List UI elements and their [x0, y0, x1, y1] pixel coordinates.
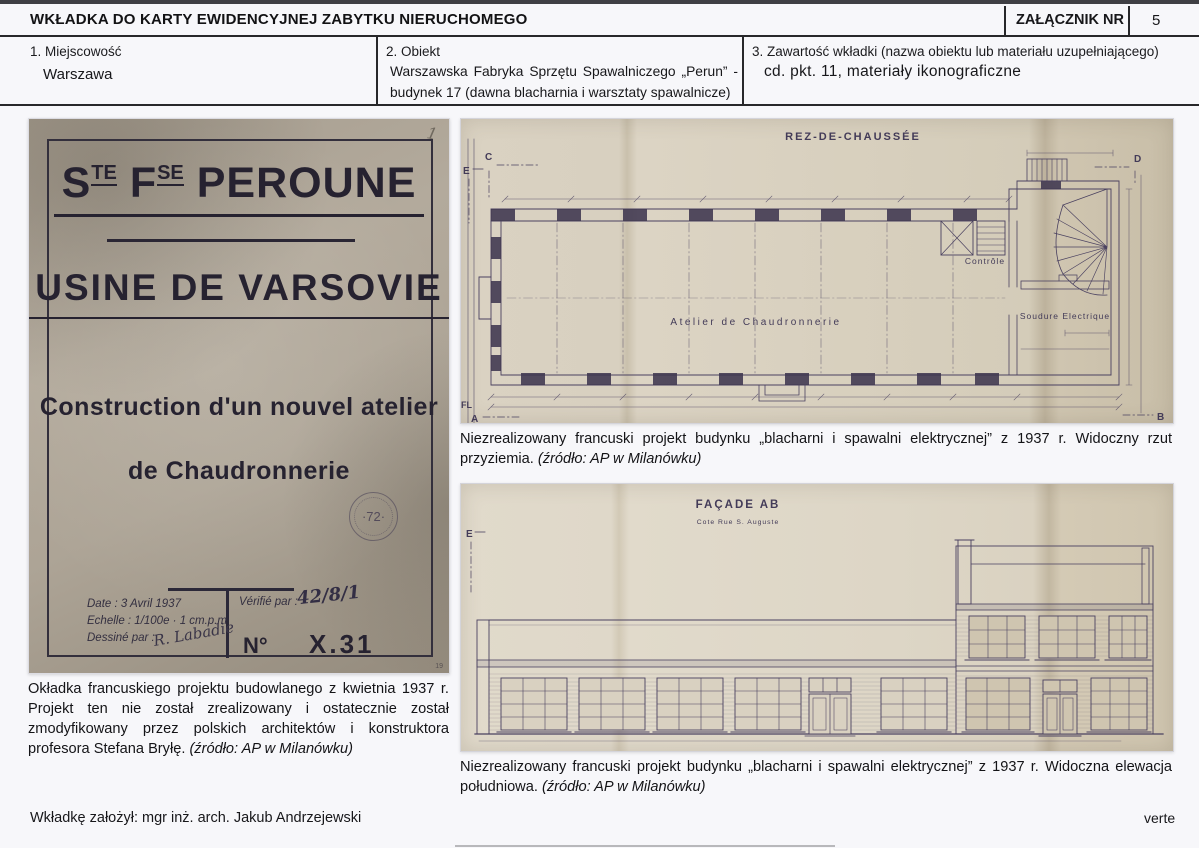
divider	[1128, 6, 1130, 35]
cover-text: USINE DE VARSOVIE	[29, 267, 449, 319]
cover-company-name: STE FSE PEROUNE	[29, 159, 449, 217]
facade-drawing: FAÇADE AB Cote Rue S. Auguste E	[461, 484, 1173, 751]
facade-caption: Niezrealizowany francuski projekt budynk…	[460, 758, 1172, 798]
cover-factory-line: USINE DE VARSOVIE	[29, 267, 449, 319]
footer-author: Wkładkę założył: mgr inż. arch. Jakub An…	[30, 810, 361, 826]
scan-edge-bottom	[455, 845, 835, 847]
caption-source: (źródło: AP w Milanówku)	[538, 451, 702, 467]
axis-marker-b: B	[1157, 412, 1164, 423]
divider	[0, 35, 1199, 37]
field-city-value: Warszawa	[43, 66, 112, 83]
cover-rule	[107, 239, 355, 242]
axis-marker-c: C	[485, 152, 492, 163]
footer-verte: verte	[1144, 810, 1175, 826]
page-title: WKŁADKA DO KARTY EWIDENCYJNEJ ZABYTKU NI…	[30, 11, 528, 28]
drawing-number-label: N°	[243, 633, 268, 659]
room-label-atelier: Atelier de Chaudronnerie	[670, 317, 841, 328]
attachment-number: 5	[1152, 12, 1160, 29]
axis-marker-a: A	[471, 414, 478, 423]
cover-date: Date : 3 Avril 1937	[87, 596, 227, 613]
divider	[376, 37, 378, 104]
cover-text: TE	[91, 162, 117, 186]
archive-stamp: ·72·	[349, 492, 398, 541]
axis-marker-d: D	[1134, 154, 1141, 165]
scan-edge-top	[0, 0, 1199, 4]
field-object-label: 2. Obiekt	[386, 44, 440, 59]
field-object-value: Warszawska Fabryka Sprzętu Spawalniczego…	[390, 62, 738, 103]
cover-text: F	[130, 159, 157, 207]
cover-photograph: 1 STE FSE PEROUNE USINE DE VARSOVIE Cons…	[28, 118, 450, 674]
wall-piers	[491, 181, 1061, 385]
field-contents-label: 3. Zawartość wkładki (nazwa obiektu lub …	[752, 44, 1159, 59]
record-card-page: WKŁADKA DO KARTY EWIDENCYJNEJ ZABYTKU NI…	[0, 0, 1199, 848]
divider	[1004, 6, 1006, 35]
cover-verified-by: Vérifié par :	[239, 596, 298, 608]
axis-marker-fl: FL	[461, 400, 472, 410]
drawing-number-value: X.31	[309, 629, 375, 660]
caption-source: (źródło: AP w Milanówku)	[189, 741, 353, 757]
cover-text: S	[62, 159, 92, 207]
cover-subject-line2: de Chaudronnerie	[29, 457, 449, 486]
divider	[742, 37, 744, 104]
axis-leaders	[469, 165, 1153, 417]
facade-title: FAÇADE AB	[696, 499, 781, 511]
tower-ground-windows	[966, 678, 1147, 734]
facade-photograph: FAÇADE AB Cote Rue S. Auguste E	[460, 483, 1174, 752]
room-label-soudure: Soudure Electrique	[1020, 311, 1110, 321]
field-contents-value: cd. pkt. 11, materiały ikonograficzne	[764, 63, 1021, 81]
plan-caption: Niezrealizowany francuski projekt budynk…	[460, 430, 1172, 470]
cover-text: PEROUNE	[184, 159, 417, 207]
pencil-page-number: 1	[425, 123, 439, 144]
corner-mark: 19	[435, 663, 443, 670]
axis-marker-e: E	[463, 166, 470, 177]
title-block-divider	[168, 588, 294, 591]
cover-text: SE	[157, 162, 184, 186]
axis-marker-e: E	[466, 529, 473, 540]
floor-plan-drawing: REZ-DE-CHAUSSÉE Atelier de Chaudronnerie…	[461, 119, 1173, 423]
plan-title: REZ-DE-CHAUSSÉE	[785, 130, 921, 143]
cover-subject-line1: Construction d'un nouvel atelier	[29, 393, 449, 422]
facade-subtitle: Cote Rue S. Auguste	[697, 519, 779, 526]
cover-caption: Okładka francuskiego projektu budowlaneg…	[28, 680, 449, 759]
room-label-controle: Contrôle	[965, 256, 1005, 266]
field-city-label: 1. Miejscowość	[30, 44, 122, 59]
attachment-label: ZAŁĄCZNIK NR	[1016, 12, 1124, 28]
caption-source: (źródło: AP w Milanówku)	[542, 779, 706, 795]
divider	[0, 104, 1199, 106]
floor-plan-photograph: REZ-DE-CHAUSSÉE Atelier de Chaudronnerie…	[460, 118, 1174, 424]
